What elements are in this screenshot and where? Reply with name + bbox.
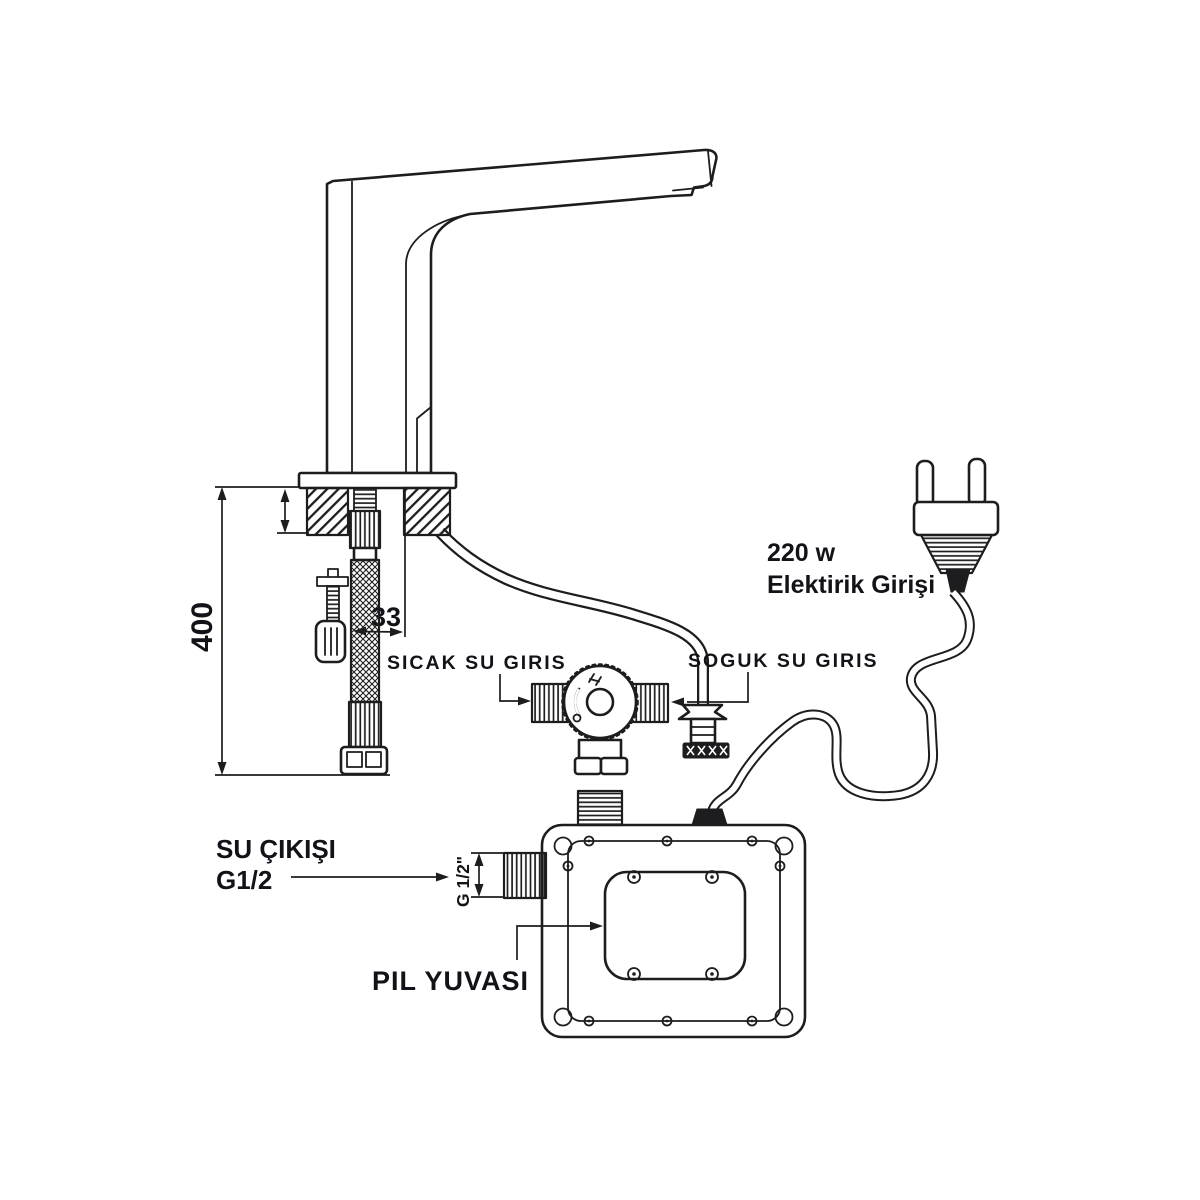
water-outlet-pipe — [504, 853, 546, 898]
faucet — [327, 150, 717, 473]
counter-section-left — [307, 488, 348, 535]
plug-prong-right — [969, 459, 985, 506]
plug-prong-left — [917, 461, 933, 507]
power-cable — [692, 592, 970, 825]
power-label: 220 w Elektirik Girişi — [767, 539, 935, 599]
battery-cover — [605, 871, 745, 980]
outlet-dimension: G 1/2" — [453, 853, 503, 907]
valve-outlet-nut — [575, 758, 601, 774]
power-label-line2: Elektirik Girişi — [767, 571, 935, 599]
inlet-filter — [679, 705, 729, 758]
outlet-label-line2: G1/2 — [216, 865, 272, 895]
control-box-inlet-thread — [578, 791, 622, 825]
faucet-baseplate — [299, 473, 456, 488]
installation-diagram-page: 400 33 — [0, 0, 1200, 1200]
outlet-thread-size: G 1/2" — [453, 856, 473, 907]
counter-section-right — [404, 488, 450, 535]
cable-gland — [692, 809, 727, 825]
dimension-counter-thickness — [277, 489, 309, 533]
mixing-tee-valve — [532, 665, 668, 775]
cold-water-leader — [671, 672, 748, 707]
outlet-label: SU ÇIKIŞI G1/2 — [216, 834, 336, 895]
dim-400-value: 400 — [186, 602, 219, 652]
cold-water-label: SOGUK SU GIRIS — [688, 650, 879, 672]
control-box — [504, 791, 805, 1037]
plug-body — [914, 502, 998, 535]
outlet-leader — [291, 873, 449, 882]
battery-label: PIL YUVASI — [372, 966, 529, 996]
hot-water-leader — [500, 674, 531, 706]
faucet-installation-diagram: 400 33 — [0, 0, 1200, 1200]
plug-cone — [921, 535, 992, 573]
outlet-label-line1: SU ÇIKIŞI — [216, 834, 336, 864]
power-label-line1: 220 w — [767, 539, 836, 567]
hot-water-label: SICAK SU GIRIS — [387, 652, 567, 674]
mounting-stud — [316, 569, 348, 662]
